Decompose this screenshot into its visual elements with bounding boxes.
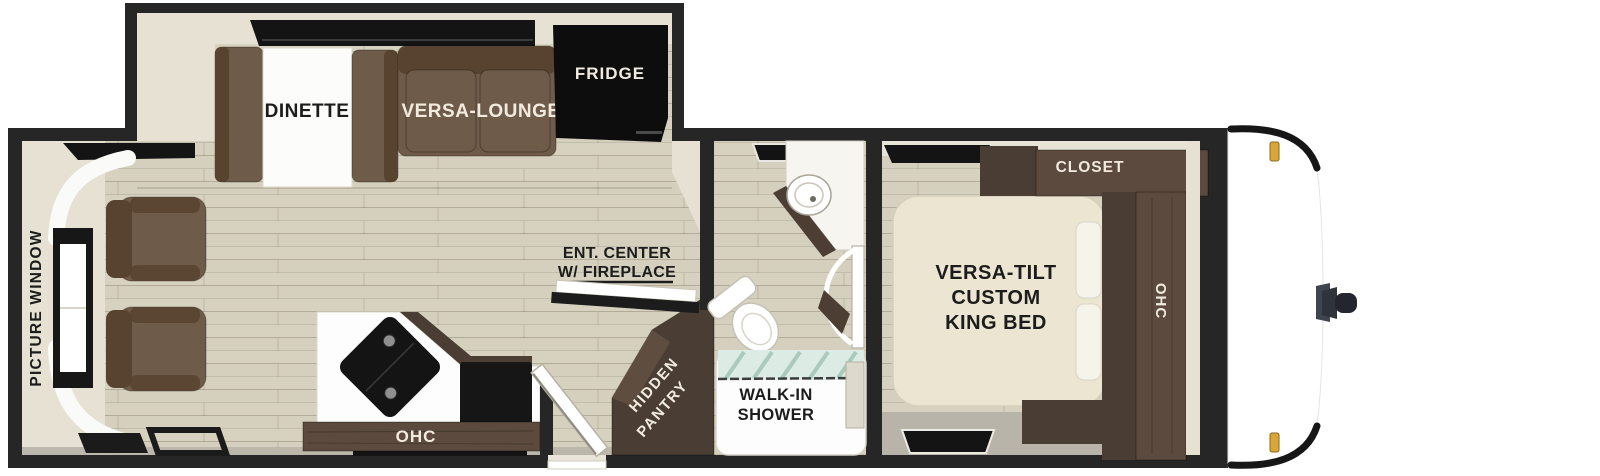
floor-register-1 [78,433,148,453]
fridge-label: FRIDGE [575,64,645,83]
kitchen-sink [460,362,532,426]
chair-back [106,310,132,388]
bottom-wall [8,455,1228,468]
front-cap [1228,128,1357,466]
top-wall-front-segment [672,128,1228,141]
dinette-bench-left-back [215,47,229,182]
lounge-chair-1 [106,197,206,281]
king-bed-label-line1: VERSA-TILT [935,262,1056,284]
fridge: FRIDGE [553,25,668,142]
hitch-arm [1322,287,1337,319]
walk-in-shower-label-line2: SHOWER [738,406,815,424]
fridge-handle [636,131,662,134]
closet-label: CLOSET [1056,159,1125,176]
ent-center-label-line1: ENT. CENTER [563,245,671,262]
bathroom-sink [787,175,831,215]
picture-window-label: PICTURE WINDOW [28,229,45,386]
dinette-bench-right-back [384,50,398,182]
sink-drain [810,196,816,202]
chair-back [106,200,132,278]
ohc-bedroom-label: OHC [1152,283,1169,319]
chair-arm-bottom [130,265,200,281]
fridge-body [553,25,668,142]
bedroom-front-wall-interior [1186,141,1200,455]
lounge-chair-2 [106,307,206,391]
walk-in-shower: WALK-IN SHOWER [716,350,866,455]
rear-wall [8,128,22,468]
top-wall-rear-segment [8,128,137,141]
slideout-right-wall [672,3,684,141]
pillow-bottom [1076,304,1101,380]
pillow-top [1076,222,1101,298]
marker-light-top [1270,142,1279,161]
walk-in-shower-label-line1: WALK-IN [739,386,812,404]
slideout-window [250,20,535,46]
dinette: DINETTE [215,47,398,187]
king-bed-label-line3: KING BED [945,312,1047,334]
bath-door-slab [852,246,864,348]
bedroom-ohc: OHC [1136,192,1186,460]
closet-end-block [980,146,1038,196]
floorplan-drawing: DINETTE VERSA-LOUNGE FRIDGE [0,0,1600,476]
chair-arm-top [130,197,200,213]
hitch-coupler [1335,293,1357,313]
bedroom-bottom-vent [902,430,994,453]
king-bed-label-line2: CUSTOM [951,287,1040,309]
bedroom-ohc-cabinet [1136,192,1186,460]
slideout-left-wall [125,3,137,141]
kitchen-ohc: OHC [303,422,540,451]
entry-step [548,461,606,469]
chair-arm-bottom [130,375,200,391]
front-cap-body [1228,128,1323,466]
marker-light-bottom [1270,433,1279,452]
bed-headboard-cabinet [1102,192,1136,460]
versa-lounge-label: VERSA-LOUNGE [401,101,560,122]
bathroom-left-wall [700,128,714,310]
dinette-label: DINETTE [265,101,350,122]
bedroom-top-vent [884,145,990,163]
ent-center-label-line2: W/ FIREPLACE [558,264,676,281]
linen-shelf [846,362,864,428]
rv-floorplan: DINETTE VERSA-LOUNGE FRIDGE [0,0,1600,476]
closet: CLOSET [1036,150,1208,196]
versa-lounge-sofa: VERSA-LOUNGE [398,46,561,156]
bathroom-right-wall [866,128,882,468]
ohc-kitchen-label: OHC [396,427,437,446]
hitch [1316,283,1357,322]
chair-arm-top [130,307,200,323]
slideout-top-wall [125,3,684,14]
bed-foot-block [1022,400,1102,444]
